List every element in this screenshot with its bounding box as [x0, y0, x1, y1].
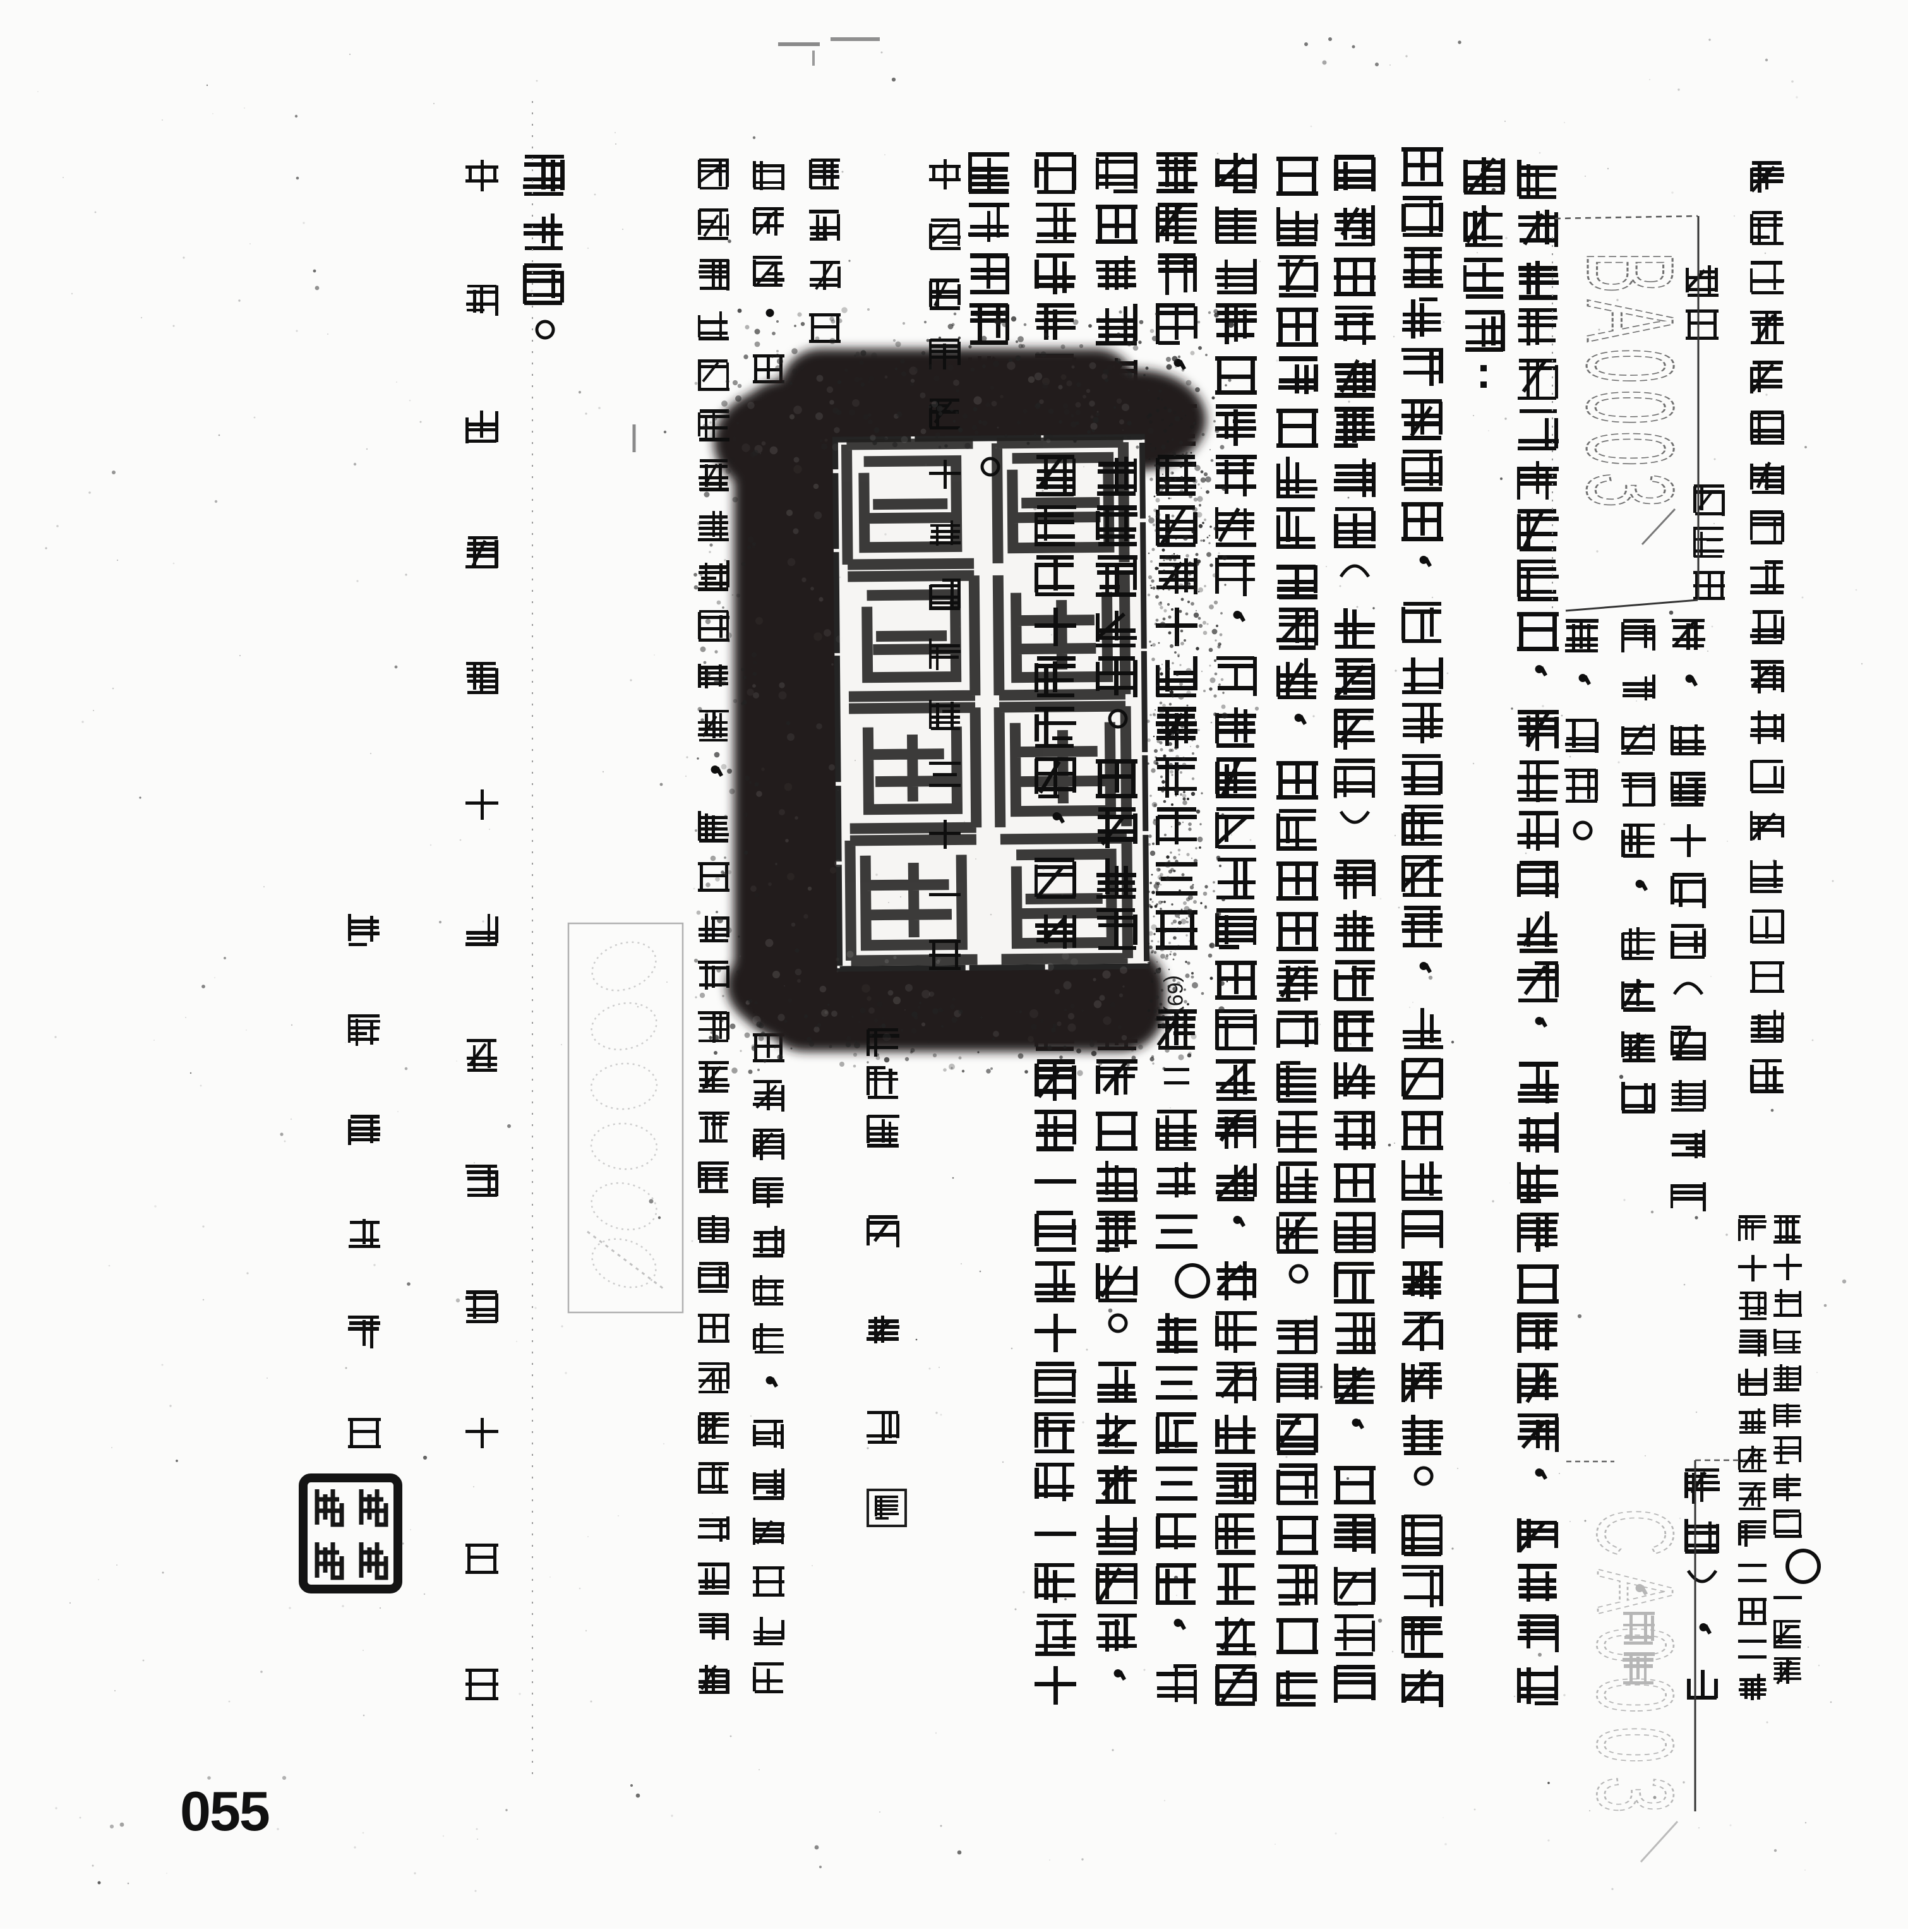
svg-text:055: 055 — [180, 1780, 269, 1842]
svg-text:BA0003: BA0003 — [1561, 251, 1699, 514]
svg-text:CA0003: CA0003 — [1575, 1508, 1695, 1826]
